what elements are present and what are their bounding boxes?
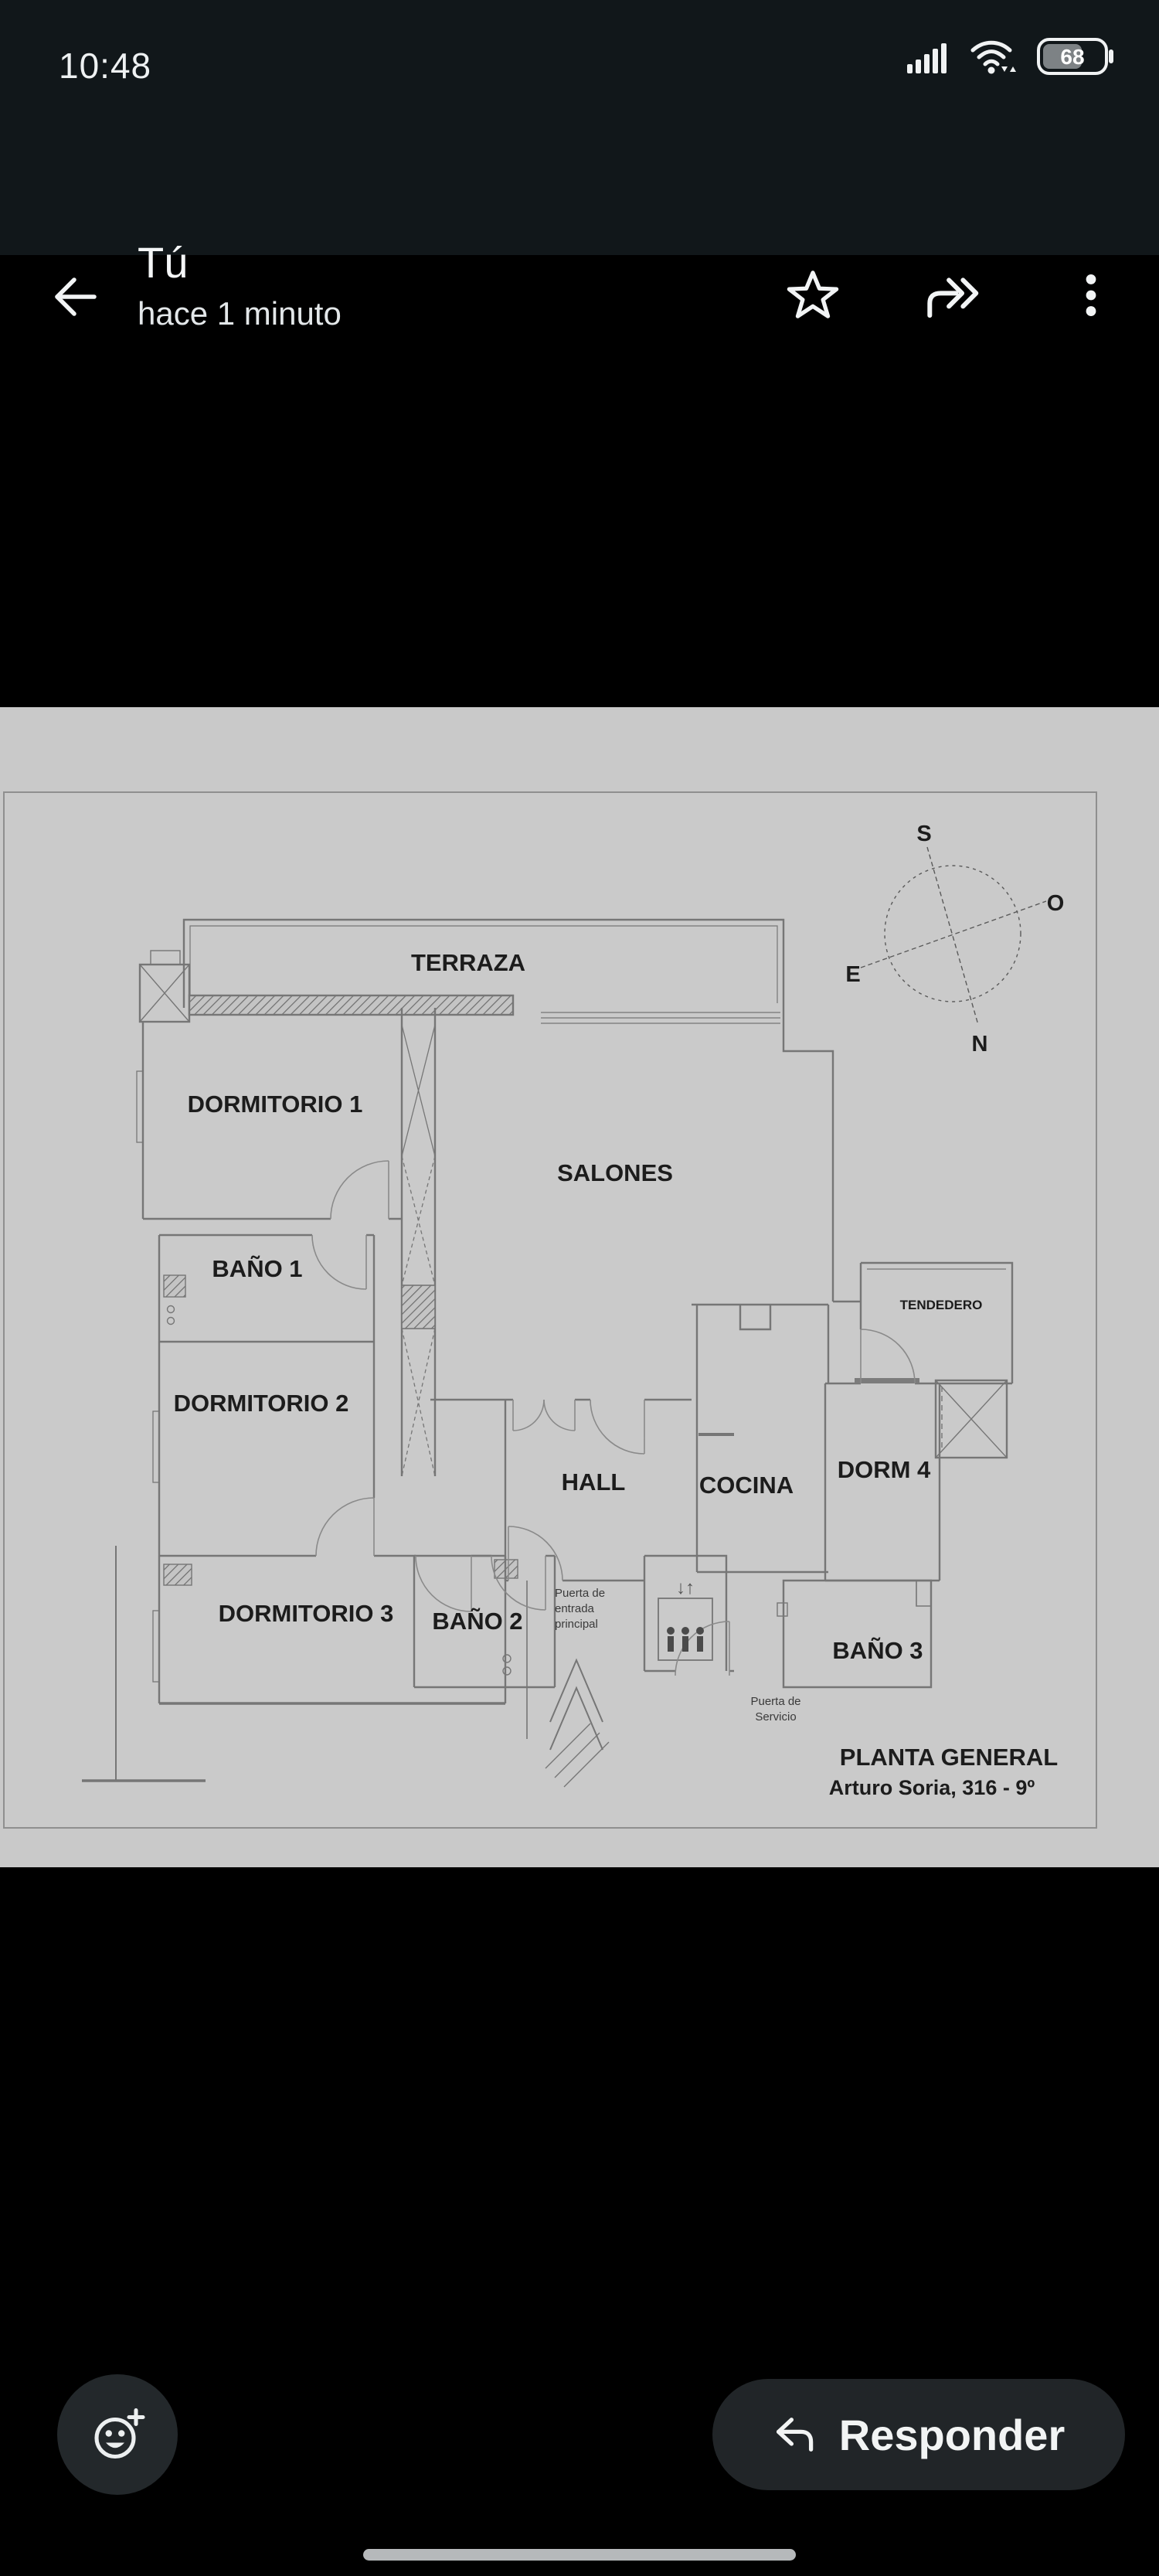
signal-icon [907,39,949,77]
compass-e: E [845,962,860,987]
app-bar: Tú hace 1 minuto [0,116,1159,255]
room-label-salones: SALONES [557,1159,673,1186]
entrance-note-line1: Puerta de [555,1587,605,1600]
service-note-line2: Servicio [755,1710,796,1724]
room-label-bano1: BAÑO 1 [212,1255,302,1282]
room-label-bano2: BAÑO 2 [432,1608,522,1635]
compass-o: O [1047,891,1065,916]
room-label-cocina: COCINA [699,1472,794,1499]
service-note-line1: Puerta de [750,1695,800,1708]
entrance-note-line2: entrada [555,1602,595,1615]
reply-button-label: Responder [839,2410,1066,2460]
back-button[interactable] [46,267,105,326]
wifi-icon [969,37,1017,80]
plan-subtitle: Arturo Soria, 316 - 9º [829,1776,1035,1799]
room-label-dormitorio1: DORMITORIO 1 [188,1091,363,1118]
battery-indicator: 68 [1037,37,1116,80]
room-label-dormitorio3: DORMITORIO 3 [219,1600,394,1627]
menu-button[interactable] [1059,263,1123,328]
page-subtitle: hace 1 minuto [138,292,342,335]
compass-rose: S O E N [845,822,1064,1057]
room-label-tendedero: TENDEDERO [900,1298,983,1312]
floorplan-image: ↓↑ S O E N TERRAZA DORMITORIO 1 [3,791,1097,1829]
back-arrow-icon [51,272,100,322]
kebab-menu-icon [1069,271,1113,320]
room-label-bano3: BAÑO 3 [832,1637,923,1664]
reply-button[interactable]: Responder [712,2379,1125,2490]
emoji-plus-icon [88,2407,147,2462]
battery-percent-text: 68 [1060,45,1084,69]
plan-title: PLANTA GENERAL [840,1744,1058,1771]
elevator-arrows: ↓↑ [676,1577,695,1598]
status-bar: 10:48 [0,0,1159,116]
forward-button[interactable] [919,263,984,328]
emoji-reaction-button[interactable] [57,2374,178,2495]
compass-n: N [972,1032,988,1057]
clock-text: 10:48 [59,45,151,87]
photo-viewer[interactable]: ↓↑ S O E N TERRAZA DORMITORIO 1 [0,707,1159,1867]
room-label-hall: HALL [562,1468,626,1496]
page-title: Tú [138,238,342,288]
room-label-dormitorio2: DORMITORIO 2 [174,1390,349,1417]
forward-icon [923,272,981,318]
reply-arrow-icon [773,2416,816,2453]
floorplan-svg: ↓↑ S O E N TERRAZA DORMITORIO 1 [5,793,1096,1827]
room-label-dorm4: DORM 4 [838,1456,931,1483]
entrance-note-line3: principal [555,1618,598,1631]
star-button[interactable] [780,263,845,328]
top-chrome: 10:48 [0,0,1159,255]
star-icon [786,268,840,322]
elevator-icon: ↓↑ [667,1577,704,1652]
compass-s: S [916,822,931,846]
plan-annotations: Puerta de entrada principal Puerta de Se… [555,1587,1058,1799]
room-label-terraza: TERRAZA [411,949,525,976]
home-indicator-bar[interactable] [363,2549,796,2561]
